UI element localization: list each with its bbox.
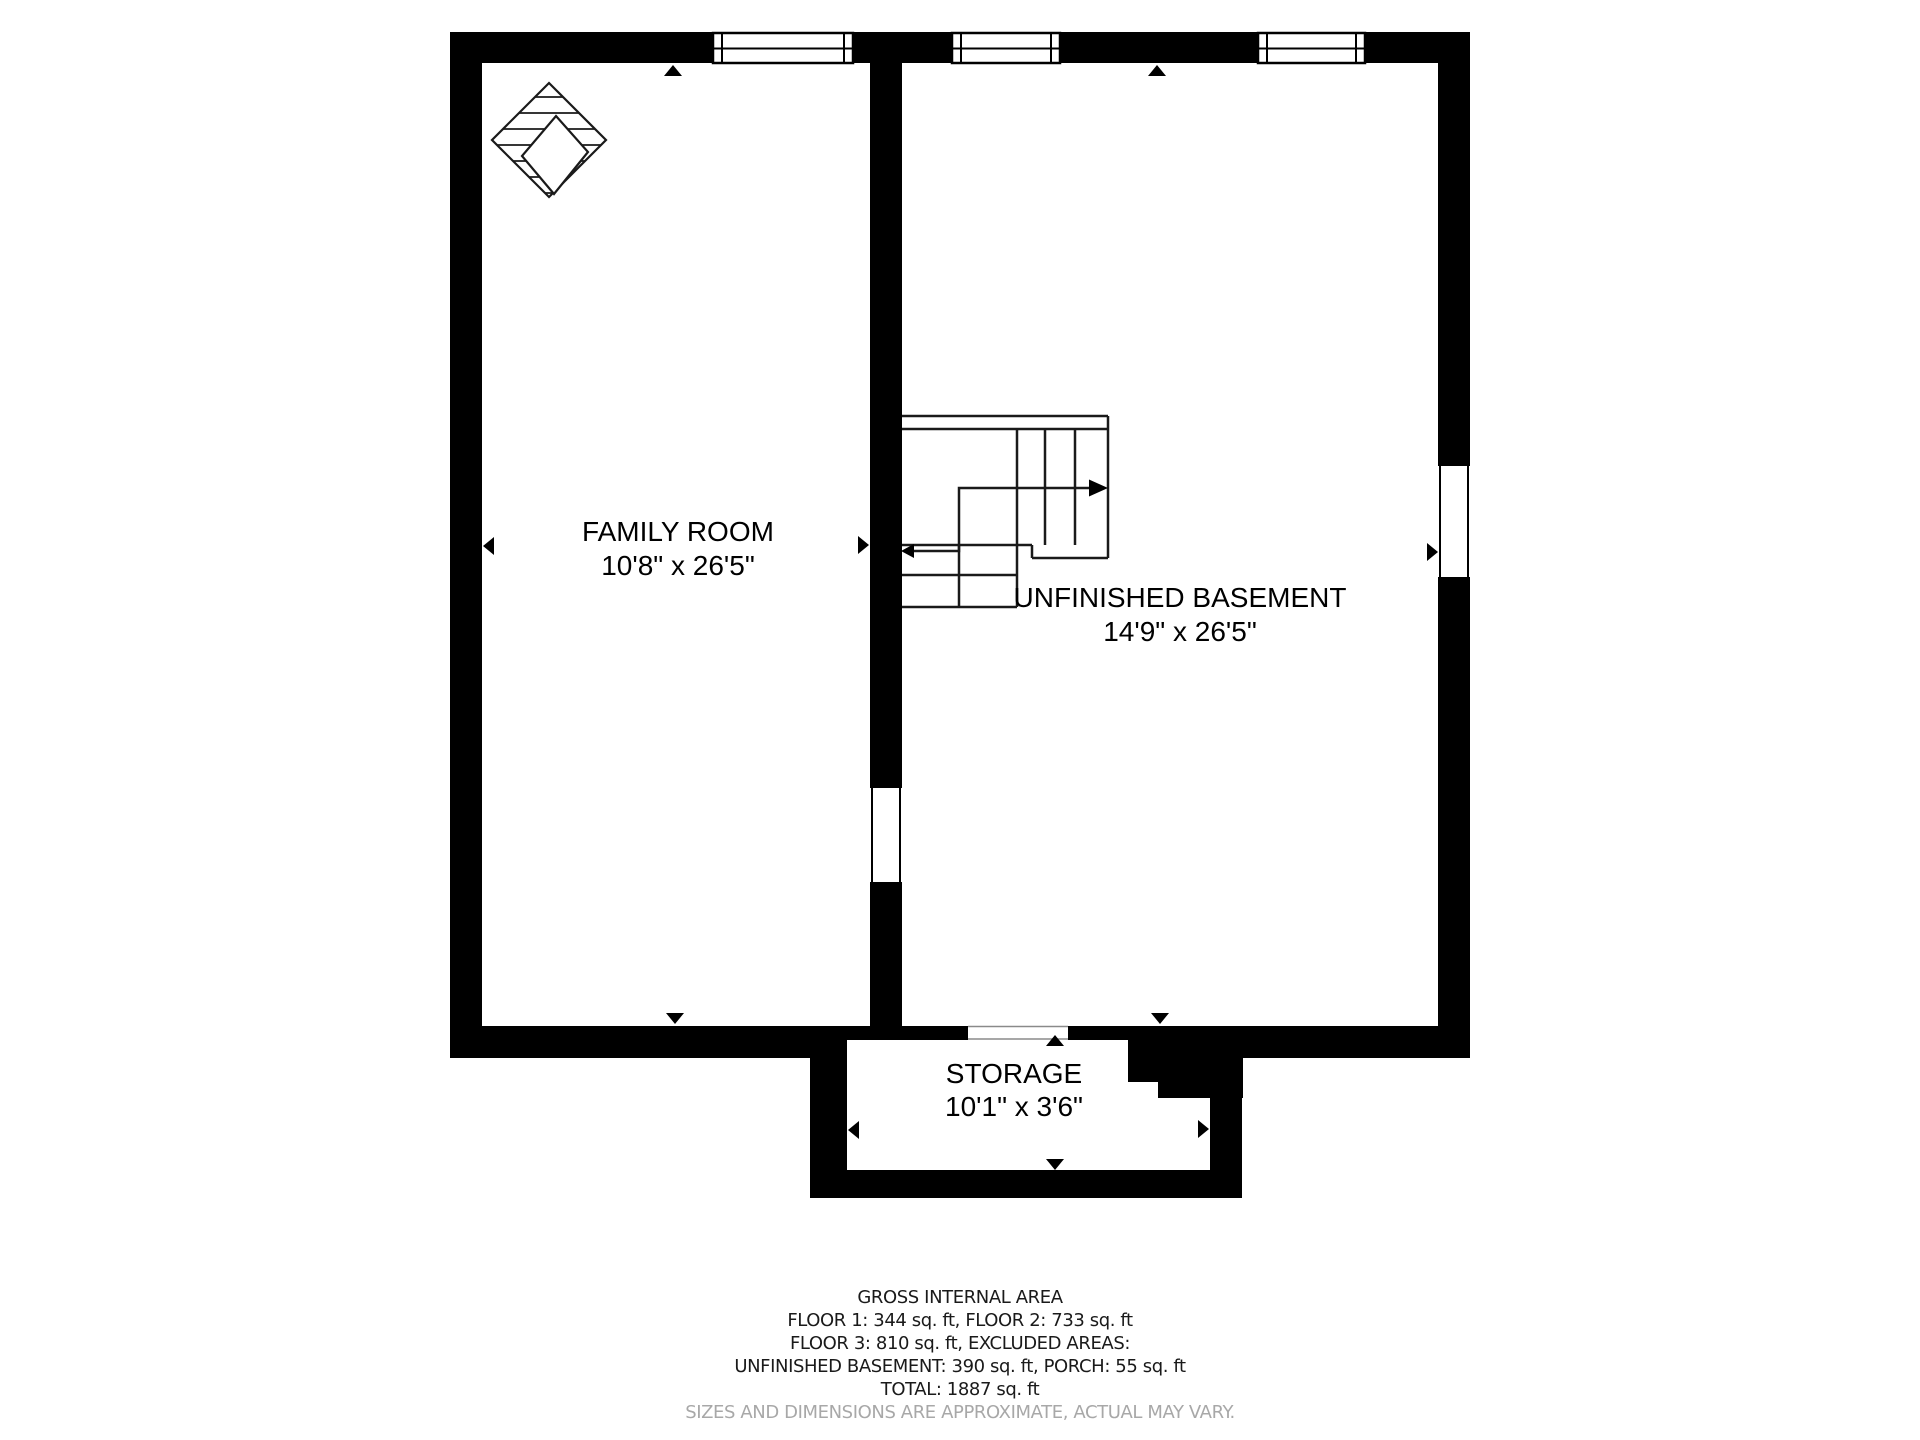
floor-plan-page: FAMILY ROOM 10'8" x 26'5" UNFINISHED BAS… (0, 0, 1920, 1440)
area-summary-line: FLOOR 1: 344 sq. ft, FLOOR 2: 733 sq. ft (0, 1309, 1920, 1332)
family-room-name: FAMILY ROOM (478, 516, 878, 548)
wall-storage-top-b (1068, 1026, 1128, 1040)
floor-plan-drawing (0, 0, 1920, 1440)
marker-up-icon (1148, 65, 1166, 76)
area-summary-line: FLOOR 3: 810 sq. ft, EXCLUDED AREAS: (0, 1332, 1920, 1355)
marker-down-icon (1046, 1159, 1064, 1170)
area-summary-total: TOTAL: 1887 sq. ft (0, 1378, 1920, 1401)
window-icon (1258, 33, 1365, 63)
opening-divider-wall (870, 788, 902, 882)
family-room-dimensions: 10'8" x 26'5" (478, 550, 878, 582)
wall-familyroom-bottom (450, 1026, 830, 1058)
marker-down-icon (1151, 1013, 1169, 1024)
window-icon (952, 33, 1060, 63)
disclaimer-text: SIZES AND DIMENSIONS ARE APPROXIMATE, AC… (0, 1401, 1920, 1424)
staircase-icon (901, 416, 1108, 607)
basement-name: UNFINISHED BASEMENT (980, 582, 1380, 614)
marker-down-icon (666, 1013, 684, 1024)
marker-right-icon (1427, 543, 1438, 561)
area-summary-line: UNFINISHED BASEMENT: 390 sq. ft, PORCH: … (0, 1355, 1920, 1378)
marker-right-icon (1198, 1120, 1209, 1138)
marker-left-icon (848, 1121, 859, 1139)
wall-storage-bottom (810, 1170, 1242, 1198)
storage-name: STORAGE (864, 1058, 1164, 1090)
marker-up-icon (664, 65, 682, 76)
wall-storage-top-a (847, 1026, 968, 1040)
area-summary: GROSS INTERNAL AREA FLOOR 1: 344 sq. ft,… (0, 1286, 1920, 1424)
window-icon (713, 33, 853, 63)
basement-dimensions: 14'9" x 26'5" (980, 616, 1380, 648)
fireplace-icon (480, 83, 620, 197)
storage-dimensions: 10'1" x 3'6" (864, 1091, 1164, 1123)
wall-step-b (1158, 1082, 1243, 1098)
windows (713, 33, 1365, 63)
wall-step-c (1210, 1098, 1242, 1170)
opening-right-wall (1438, 466, 1470, 577)
area-summary-title: GROSS INTERNAL AREA (0, 1286, 1920, 1309)
walls (450, 32, 1470, 1198)
wall-basement-bottom (1243, 1026, 1470, 1058)
